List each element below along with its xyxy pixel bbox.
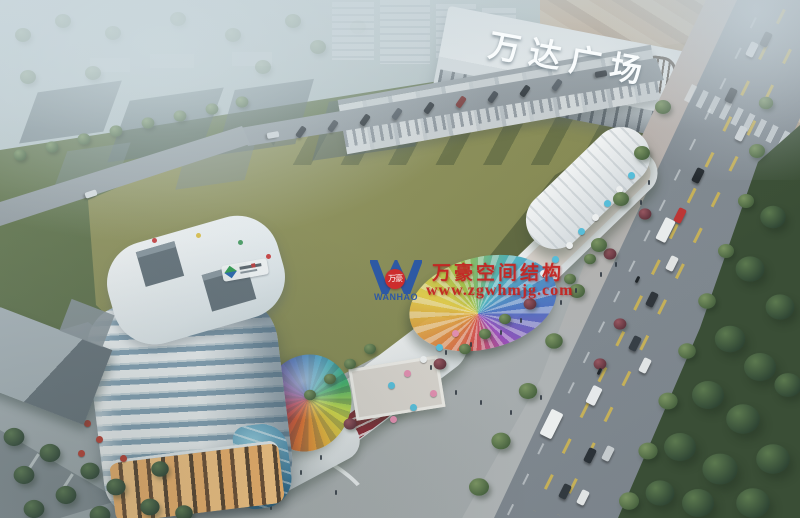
watermark-website: www.zgwhmjg.com <box>426 282 573 300</box>
watermark: 万豪 WANHAO 万豪空间结构 www.zgwhmjg.com <box>368 256 608 320</box>
watermark-company-name: 万豪空间结构 <box>432 258 564 285</box>
watermark-logo-caption: WANHAO <box>368 292 424 302</box>
aerial-rendering-scene: 万达广场 万豪 WANHAO 万豪空间结构 www.zgwhmjg.com <box>0 0 800 518</box>
watermark-logo-badge: 万豪 <box>385 269 405 289</box>
